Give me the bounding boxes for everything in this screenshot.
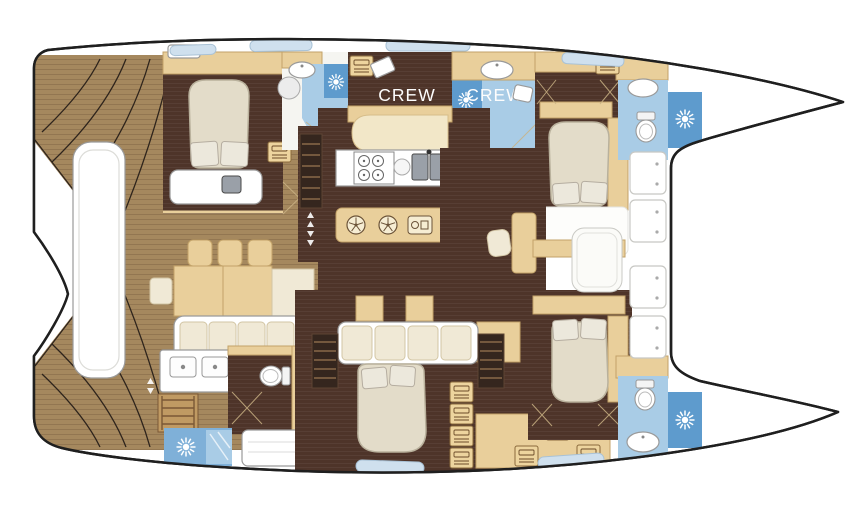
toilet-icon xyxy=(636,112,656,142)
nav-seat xyxy=(486,229,511,258)
side-table xyxy=(356,296,383,321)
vanity xyxy=(170,170,262,204)
saloon-nav-station xyxy=(440,148,546,306)
headboard xyxy=(533,296,625,314)
deck-locker xyxy=(630,152,666,194)
pillow xyxy=(580,318,606,340)
sink-basin-icon xyxy=(628,79,658,97)
galley-counter-curve xyxy=(352,115,448,151)
cushion xyxy=(375,326,405,360)
round-sink-icon xyxy=(394,159,410,175)
deck-locker xyxy=(630,200,666,242)
toilet-icon xyxy=(260,366,290,386)
deck-locker xyxy=(630,316,666,358)
trampoline-ghost-lines xyxy=(672,162,792,354)
pillow xyxy=(361,367,388,389)
port-fwd-cabin xyxy=(535,52,628,255)
berth-storage-icon xyxy=(450,426,473,446)
vent-fan-icon xyxy=(347,216,365,234)
pillow xyxy=(389,365,415,387)
stove-icon xyxy=(354,152,394,184)
interior: CREW CREW xyxy=(34,39,792,474)
transom-bench xyxy=(73,142,125,378)
starboard-fwd-bathroom xyxy=(616,356,702,460)
pillow xyxy=(580,181,607,204)
pillow xyxy=(552,319,578,341)
catamaran-floor-plan-svg: CREW CREW xyxy=(0,0,850,505)
crew-label-port: CREW xyxy=(378,85,435,105)
shower-tray xyxy=(278,77,300,99)
side-table xyxy=(406,296,433,321)
cushion xyxy=(441,326,471,360)
berth-storage-icon xyxy=(515,446,538,466)
berth-storage-icon xyxy=(450,382,473,402)
berth-storage-icon xyxy=(450,448,473,468)
hob-icon xyxy=(408,216,432,234)
deck-locker xyxy=(630,266,666,308)
deck-hatch xyxy=(250,39,312,51)
aft-berth xyxy=(242,430,304,466)
day-head xyxy=(228,346,304,434)
chair xyxy=(150,278,172,304)
cockpit-table xyxy=(572,228,622,292)
chair xyxy=(218,240,242,266)
pillow xyxy=(552,182,579,205)
chair xyxy=(188,240,212,266)
cushion xyxy=(342,326,372,360)
chair xyxy=(248,240,272,266)
cushion xyxy=(408,326,438,360)
vent-fan-icon xyxy=(379,216,397,234)
transom-shower xyxy=(164,428,232,466)
yacht-floor-plan: CREW CREW xyxy=(0,0,850,505)
pillow xyxy=(190,141,219,167)
sink-basin-icon xyxy=(289,62,315,78)
companionway-stairs xyxy=(300,134,322,208)
deck-hatch xyxy=(170,44,216,56)
berth-storage-icon xyxy=(350,56,373,76)
pillow xyxy=(220,141,248,166)
berth-storage-icon xyxy=(450,404,473,424)
towel xyxy=(513,84,534,102)
toilet-icon xyxy=(635,380,655,410)
sink-icon xyxy=(222,176,241,193)
nav-desk xyxy=(512,213,536,273)
headboard xyxy=(540,102,612,118)
sink-basin-icon xyxy=(627,432,659,452)
